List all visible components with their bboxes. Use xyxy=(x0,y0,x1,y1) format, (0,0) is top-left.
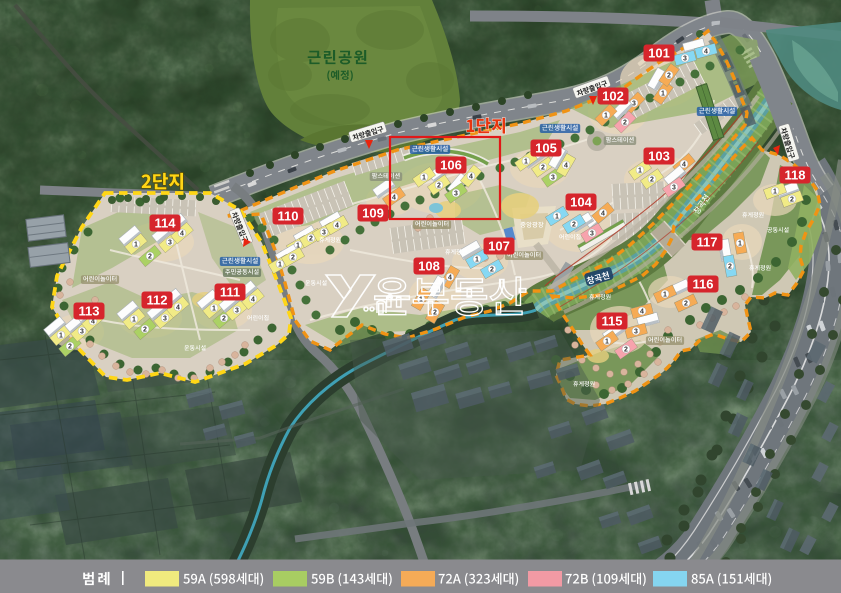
svg-text:1: 1 xyxy=(663,291,667,298)
svg-text:2: 2 xyxy=(623,119,627,126)
svg-text:1: 1 xyxy=(773,188,777,195)
svg-text:110: 110 xyxy=(278,209,299,224)
svg-text:103: 103 xyxy=(648,149,670,164)
svg-text:1: 1 xyxy=(524,158,528,165)
svg-text:3: 3 xyxy=(235,307,239,314)
svg-text:111: 111 xyxy=(220,285,240,300)
svg-text:109: 109 xyxy=(362,206,384,221)
svg-text:4: 4 xyxy=(682,161,686,168)
svg-text:2: 2 xyxy=(684,300,688,307)
svg-text:3: 3 xyxy=(634,328,638,335)
svg-text:116: 116 xyxy=(693,277,714,292)
svg-text:2: 2 xyxy=(68,343,72,350)
svg-text:1: 1 xyxy=(555,213,559,220)
svg-text:2: 2 xyxy=(728,263,732,270)
svg-text:2: 2 xyxy=(437,182,441,189)
svg-text:4: 4 xyxy=(335,222,339,229)
svg-text:2: 2 xyxy=(541,164,545,171)
svg-text:1: 1 xyxy=(59,332,63,339)
svg-text:2: 2 xyxy=(433,309,437,316)
svg-text:105: 105 xyxy=(535,141,557,156)
svg-text:2: 2 xyxy=(148,253,152,260)
svg-text:113: 113 xyxy=(79,304,100,319)
svg-text:112: 112 xyxy=(147,293,168,308)
svg-text:3: 3 xyxy=(590,230,594,237)
svg-text:1: 1 xyxy=(278,261,282,268)
svg-text:3: 3 xyxy=(163,315,167,322)
svg-text:2: 2 xyxy=(790,196,794,203)
svg-text:1: 1 xyxy=(605,338,609,345)
svg-text:4: 4 xyxy=(180,230,184,237)
svg-text:4: 4 xyxy=(601,210,605,217)
svg-text:1: 1 xyxy=(132,316,136,323)
svg-text:2: 2 xyxy=(667,72,671,79)
svg-text:4: 4 xyxy=(176,304,180,311)
svg-text:4: 4 xyxy=(564,162,568,169)
svg-text:3: 3 xyxy=(672,184,676,191)
svg-text:108: 108 xyxy=(418,259,440,274)
svg-text:107: 107 xyxy=(488,239,510,254)
svg-text:1: 1 xyxy=(604,112,608,119)
svg-text:3: 3 xyxy=(454,190,458,197)
svg-text:102: 102 xyxy=(602,89,624,104)
svg-text:1: 1 xyxy=(638,167,642,174)
svg-text:114: 114 xyxy=(155,216,177,231)
svg-text:4: 4 xyxy=(448,274,452,281)
svg-text:117: 117 xyxy=(697,235,718,250)
svg-text:1: 1 xyxy=(422,174,426,181)
svg-text:4: 4 xyxy=(640,308,644,315)
svg-text:1: 1 xyxy=(475,256,479,263)
svg-text:2: 2 xyxy=(572,221,576,228)
svg-text:2: 2 xyxy=(291,254,295,261)
svg-text:4: 4 xyxy=(251,296,255,303)
svg-text:2: 2 xyxy=(222,315,226,322)
svg-text:115: 115 xyxy=(602,314,623,329)
svg-text:2: 2 xyxy=(490,266,494,273)
svg-text:104: 104 xyxy=(570,195,592,210)
svg-text:2: 2 xyxy=(624,346,628,353)
svg-text:106: 106 xyxy=(440,158,462,173)
svg-text:3: 3 xyxy=(683,55,687,62)
svg-text:3: 3 xyxy=(168,239,172,246)
svg-text:2: 2 xyxy=(650,176,654,183)
svg-text:4: 4 xyxy=(469,173,473,180)
svg-text:2: 2 xyxy=(309,235,313,242)
svg-text:3: 3 xyxy=(551,174,555,181)
svg-text:3: 3 xyxy=(322,229,326,236)
svg-text:118: 118 xyxy=(785,168,806,183)
svg-text:4: 4 xyxy=(704,48,708,55)
svg-text:1: 1 xyxy=(212,305,216,312)
svg-text:1: 1 xyxy=(738,240,742,247)
svg-text:1: 1 xyxy=(134,241,138,248)
svg-text:3: 3 xyxy=(632,100,636,107)
svg-text:101: 101 xyxy=(648,46,670,61)
svg-text:4: 4 xyxy=(392,194,396,201)
svg-text:1: 1 xyxy=(661,90,665,97)
svg-text:3: 3 xyxy=(80,328,84,335)
svg-text:2: 2 xyxy=(143,326,147,333)
